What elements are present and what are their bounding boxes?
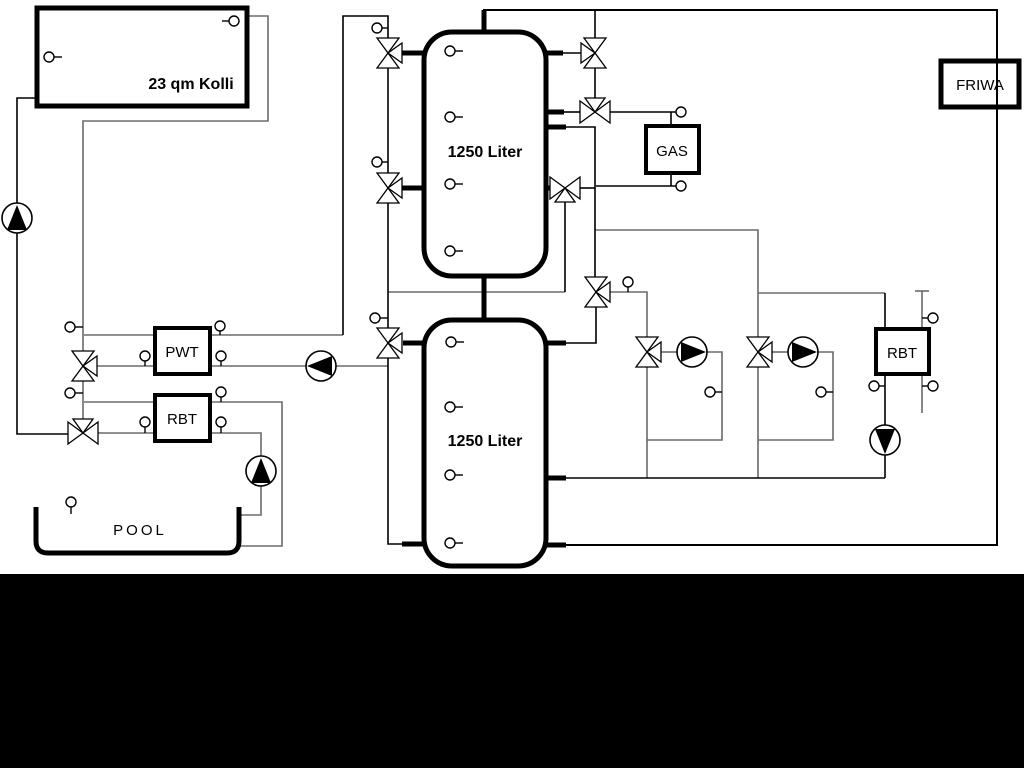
solar-collector: 23 qm Kolli — [37, 8, 247, 106]
pump-circuit1-right — [677, 337, 707, 367]
pwt-label: PWT — [165, 344, 198, 361]
collector-label: 23 qm Kolli — [148, 76, 233, 93]
sensor-gas-supply — [676, 107, 686, 117]
bottom-mask — [0, 574, 1024, 768]
buffer-tank-1: 1250 Liter — [424, 32, 546, 276]
pump-collector-up — [2, 203, 32, 233]
gas-label: GAS — [656, 143, 688, 160]
pwt-heat-exchanger: PWT — [155, 328, 210, 374]
buffer-tank-2: 1250 Liter — [424, 320, 546, 566]
pump-circuit2-right — [788, 337, 818, 367]
pump-rbt-right-down — [870, 425, 900, 455]
tank2-label: 1250 Liter — [448, 433, 523, 450]
schematic-canvas: 23 qm Kolli 1250 Liter 1250 Liter PWT RB… — [0, 0, 1024, 768]
pool-label: POOL — [113, 522, 167, 539]
hydraulic-schematic: 23 qm Kolli 1250 Liter 1250 Liter PWT RB… — [0, 0, 1024, 768]
pump-pwt-left — [306, 351, 336, 381]
tank1-label: 1250 Liter — [448, 144, 523, 161]
rbt-left-label: RBT — [167, 411, 197, 428]
rbt-left-heat-exchanger: RBT — [155, 395, 210, 441]
gas-boiler: GAS — [646, 126, 699, 173]
pump-pool-up — [246, 456, 276, 486]
sensor-gas-return — [676, 181, 686, 191]
rbt-right-heat-exchanger: RBT — [876, 329, 929, 374]
rbt-right-label: RBT — [887, 345, 917, 362]
friwa-label: FRIWA — [956, 77, 1004, 94]
